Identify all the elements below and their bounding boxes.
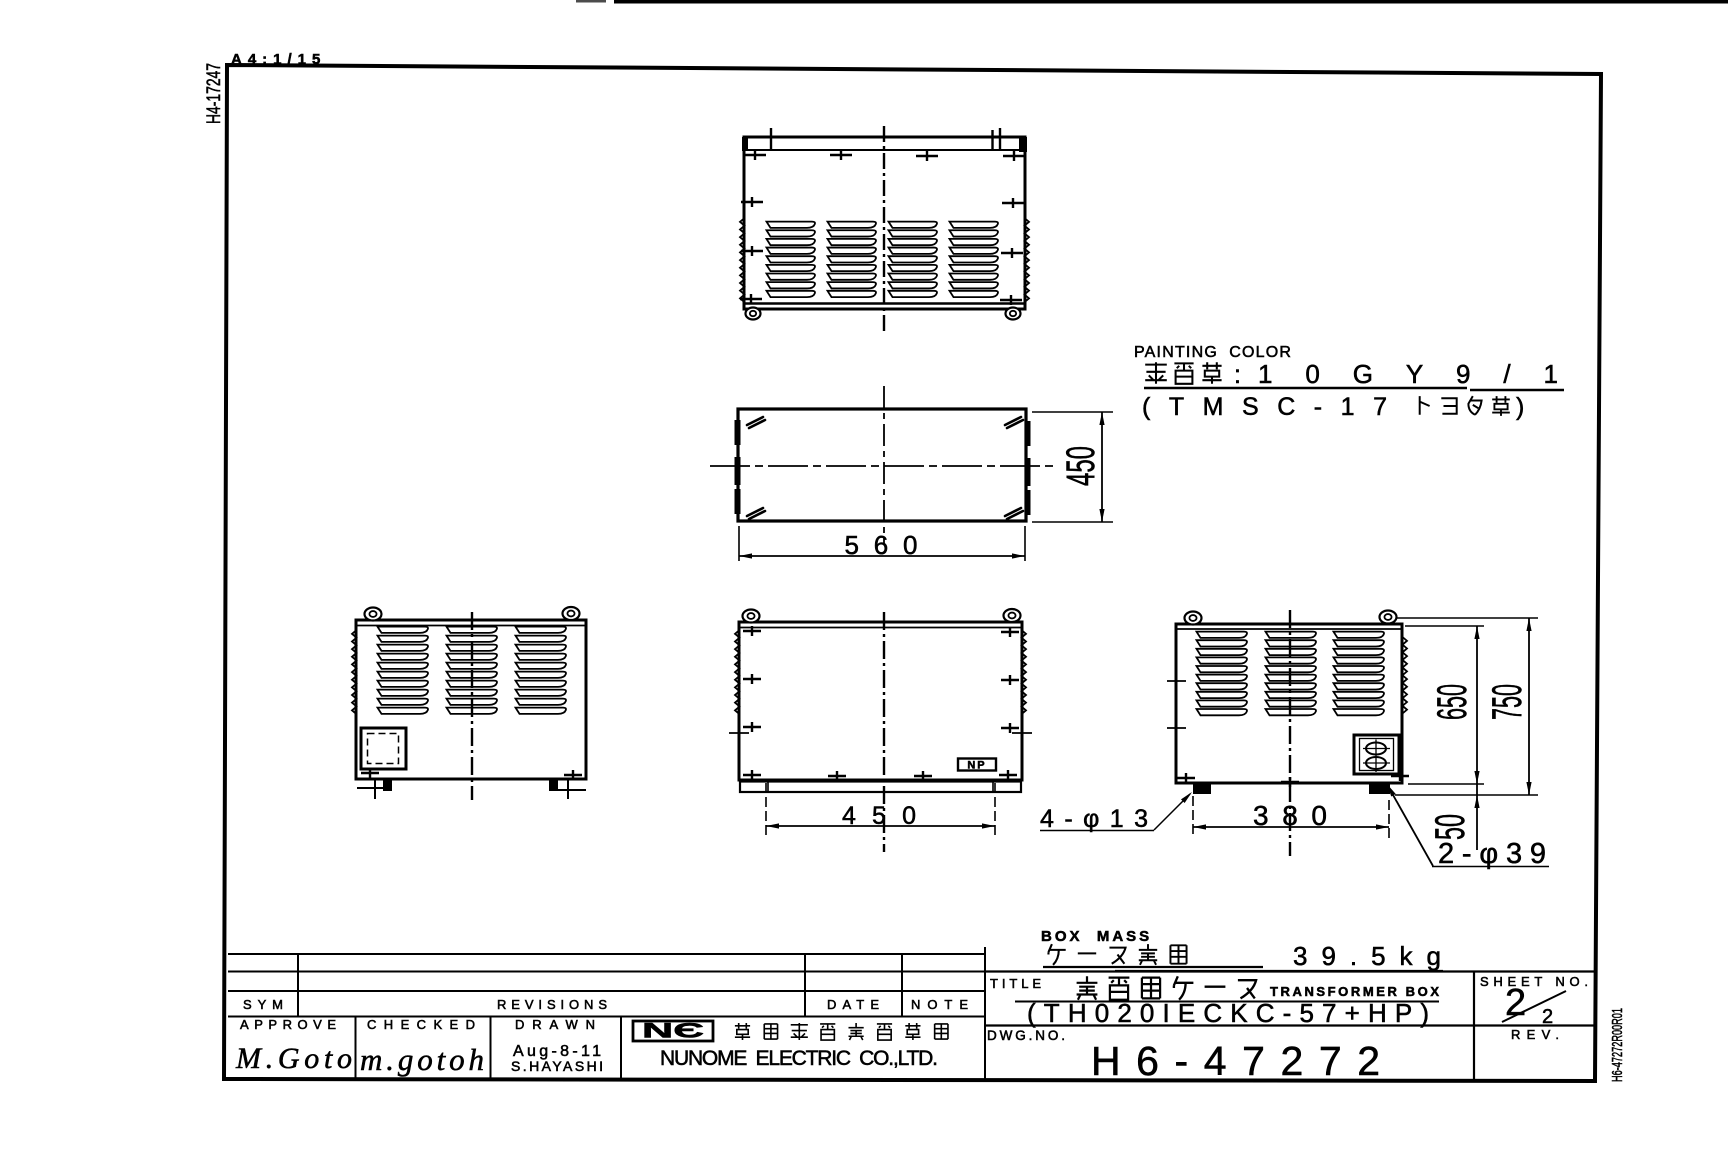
svg-text:S.HAYASHI: S.HAYASHI	[511, 1058, 603, 1074]
svg-text:NUNOME ELECTRIC CO.,LTD.: NUNOME ELECTRIC CO.,LTD.	[660, 1047, 938, 1070]
svg-text:2: 2	[1505, 982, 1526, 1024]
svg-text:450: 450	[842, 802, 916, 830]
svg-text:NЄ: NЄ	[642, 1020, 704, 1043]
svg-text:750: 750	[1483, 684, 1530, 720]
svg-text:SHEET NO.: SHEET NO.	[1480, 974, 1588, 989]
svg-text:2: 2	[1542, 1006, 1553, 1028]
svg-text:H4-17247: H4-17247	[204, 63, 225, 124]
svg-text::: :	[1234, 361, 1241, 389]
svg-text:SYM: SYM	[243, 997, 283, 1012]
svg-text:650: 650	[1428, 684, 1475, 720]
svg-text:TRANSFORMER BOX: TRANSFORMER BOX	[1270, 984, 1439, 999]
svg-text:380: 380	[1253, 800, 1327, 831]
svg-text:BOX MASS: BOX MASS	[1041, 928, 1152, 945]
svg-text:H6-47272R00R01: H6-47272R00R01	[1609, 1008, 1626, 1082]
svg-text:): )	[1516, 393, 1524, 421]
svg-text:A4:1/15: A4:1/15	[231, 51, 326, 68]
svg-text:REVISIONS: REVISIONS	[497, 997, 607, 1012]
svg-text:TITLE: TITLE	[990, 976, 1041, 991]
svg-text:560: 560	[845, 530, 918, 560]
svg-text:NP: NP	[967, 760, 986, 772]
svg-text:50: 50	[1426, 814, 1473, 840]
svg-text:450: 450	[1059, 446, 1103, 486]
